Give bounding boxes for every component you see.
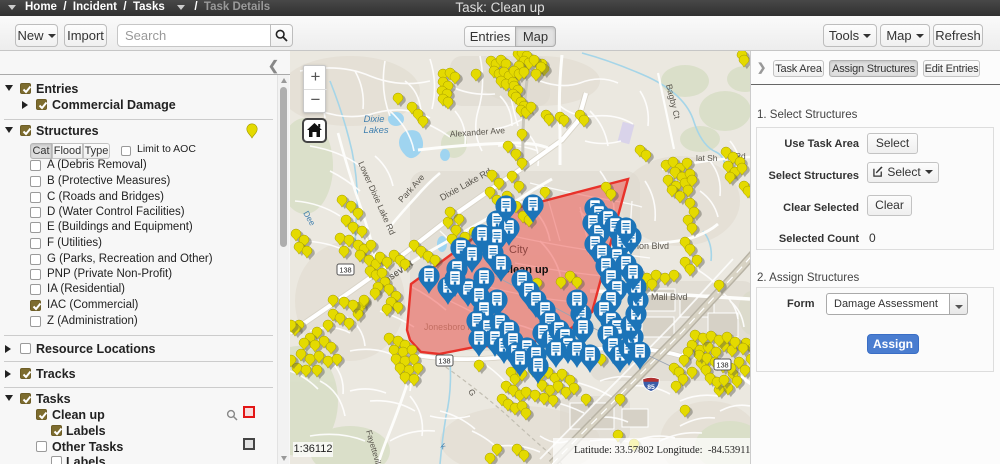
svg-text:Mall Blvd: Mall Blvd [651, 292, 688, 302]
svg-text:Lakes: Lakes [363, 124, 388, 135]
svg-text:City: City [509, 244, 528, 256]
svg-text:138: 138 [438, 357, 450, 366]
svg-text:lat Sh: lat Sh [696, 153, 718, 163]
svg-text:138: 138 [716, 361, 728, 370]
svg-text:138: 138 [339, 266, 351, 275]
svg-text:85: 85 [647, 384, 655, 391]
svg-text:Dixie: Dixie [364, 113, 385, 124]
